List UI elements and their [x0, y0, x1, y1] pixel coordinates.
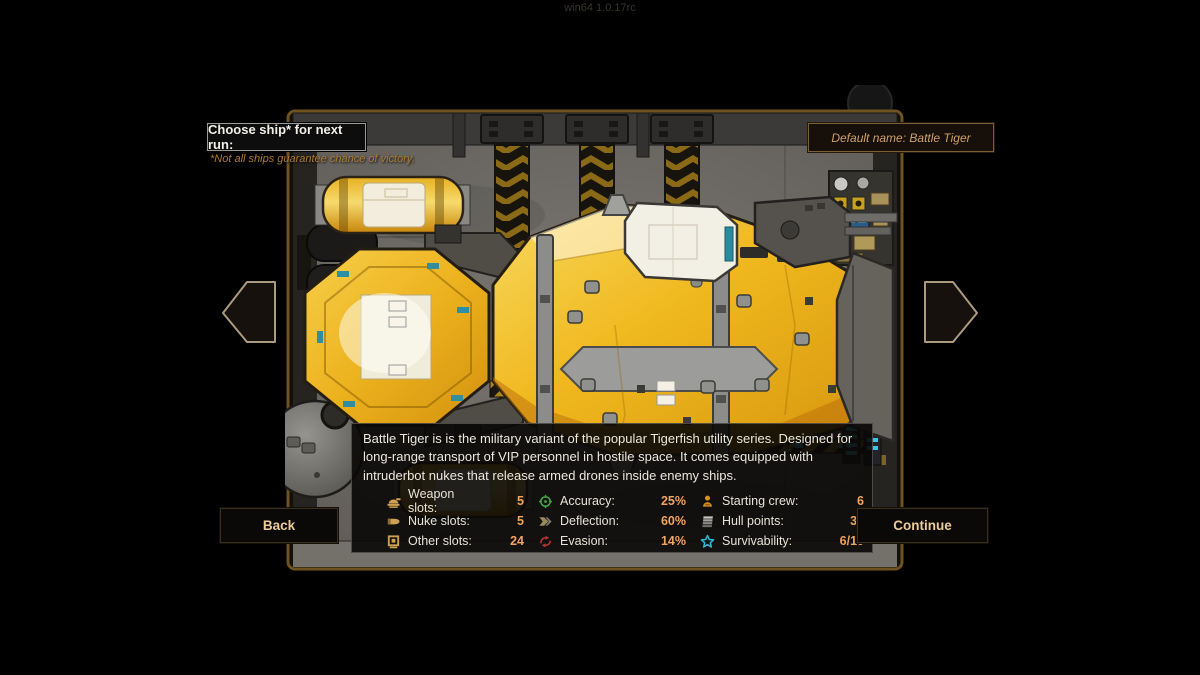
choose-ship-label: Choose ship* for next run:	[207, 123, 366, 151]
stat-value: 14%	[642, 534, 700, 548]
stat-value: 6	[820, 494, 878, 508]
accuracy-icon	[538, 494, 555, 509]
stat-label: Starting crew:	[722, 494, 820, 508]
back-button[interactable]: Back	[220, 508, 338, 543]
ship-cockpit	[625, 203, 737, 281]
stat-starting-crew: Starting crew: 6	[700, 491, 878, 511]
ship-octagon-module	[305, 249, 489, 425]
evasion-icon	[538, 534, 555, 549]
version-text: win64 1.0.17rc	[0, 2, 1200, 14]
continue-button[interactable]: Continue	[857, 508, 988, 543]
next-ship-arrow[interactable]	[923, 280, 979, 344]
ship-stats: Weapon slots: 5 Nuke slots: 5 Other slot…	[352, 488, 872, 551]
stat-value: 5	[480, 514, 538, 528]
stat-column-ship: Starting crew: 6 Hull points: 30 Surviva…	[700, 491, 878, 551]
stat-label: Nuke slots:	[408, 514, 480, 528]
stat-value: 24	[480, 534, 538, 548]
stat-column-slots: Weapon slots: 5 Nuke slots: 5 Other slot…	[386, 491, 538, 551]
stat-column-combat: Accuracy: 25% Deflection: 60% Evasion: 1…	[538, 491, 700, 551]
stat-label: Evasion:	[560, 534, 642, 548]
stat-evasion: Evasion: 14%	[538, 531, 700, 551]
stat-label: Accuracy:	[560, 494, 642, 508]
stat-label: Deflection:	[560, 514, 642, 528]
stat-survivability: Survivability: 6/10	[700, 531, 878, 551]
stat-accuracy: Accuracy: 25%	[538, 491, 700, 511]
previous-ship-arrow[interactable]	[221, 280, 277, 344]
ship-description: Battle Tiger is is the military variant …	[352, 424, 872, 488]
stat-value: 5	[480, 494, 538, 508]
stat-hull-points: Hull points: 30	[700, 511, 878, 531]
stat-label: Weapon slots:	[408, 487, 480, 515]
deflection-icon	[538, 514, 555, 529]
stat-label: Hull points:	[722, 514, 820, 528]
weapon-slots-icon	[386, 494, 403, 509]
stat-nuke-slots: Nuke slots: 5	[386, 511, 538, 531]
starting-crew-icon	[700, 494, 717, 509]
stat-label: Other slots:	[408, 534, 480, 548]
stat-weapon-slots: Weapon slots: 5	[386, 491, 538, 511]
stat-label: Survivability:	[722, 534, 820, 548]
other-slots-icon	[386, 534, 403, 549]
ship-info-panel: Battle Tiger is is the military variant …	[351, 423, 873, 553]
stat-other-slots: Other slots: 24	[386, 531, 538, 551]
stat-value: 25%	[642, 494, 700, 508]
ship-disclaimer: *Not all ships guarantee chance of victo…	[210, 153, 415, 165]
survivability-icon	[700, 534, 717, 549]
stat-deflection: Deflection: 60%	[538, 511, 700, 531]
ship-name-field[interactable]: Default name: Battle Tiger	[808, 123, 994, 152]
hull-points-icon	[700, 514, 717, 529]
stat-value: 60%	[642, 514, 700, 528]
nuke-slots-icon	[386, 514, 403, 529]
